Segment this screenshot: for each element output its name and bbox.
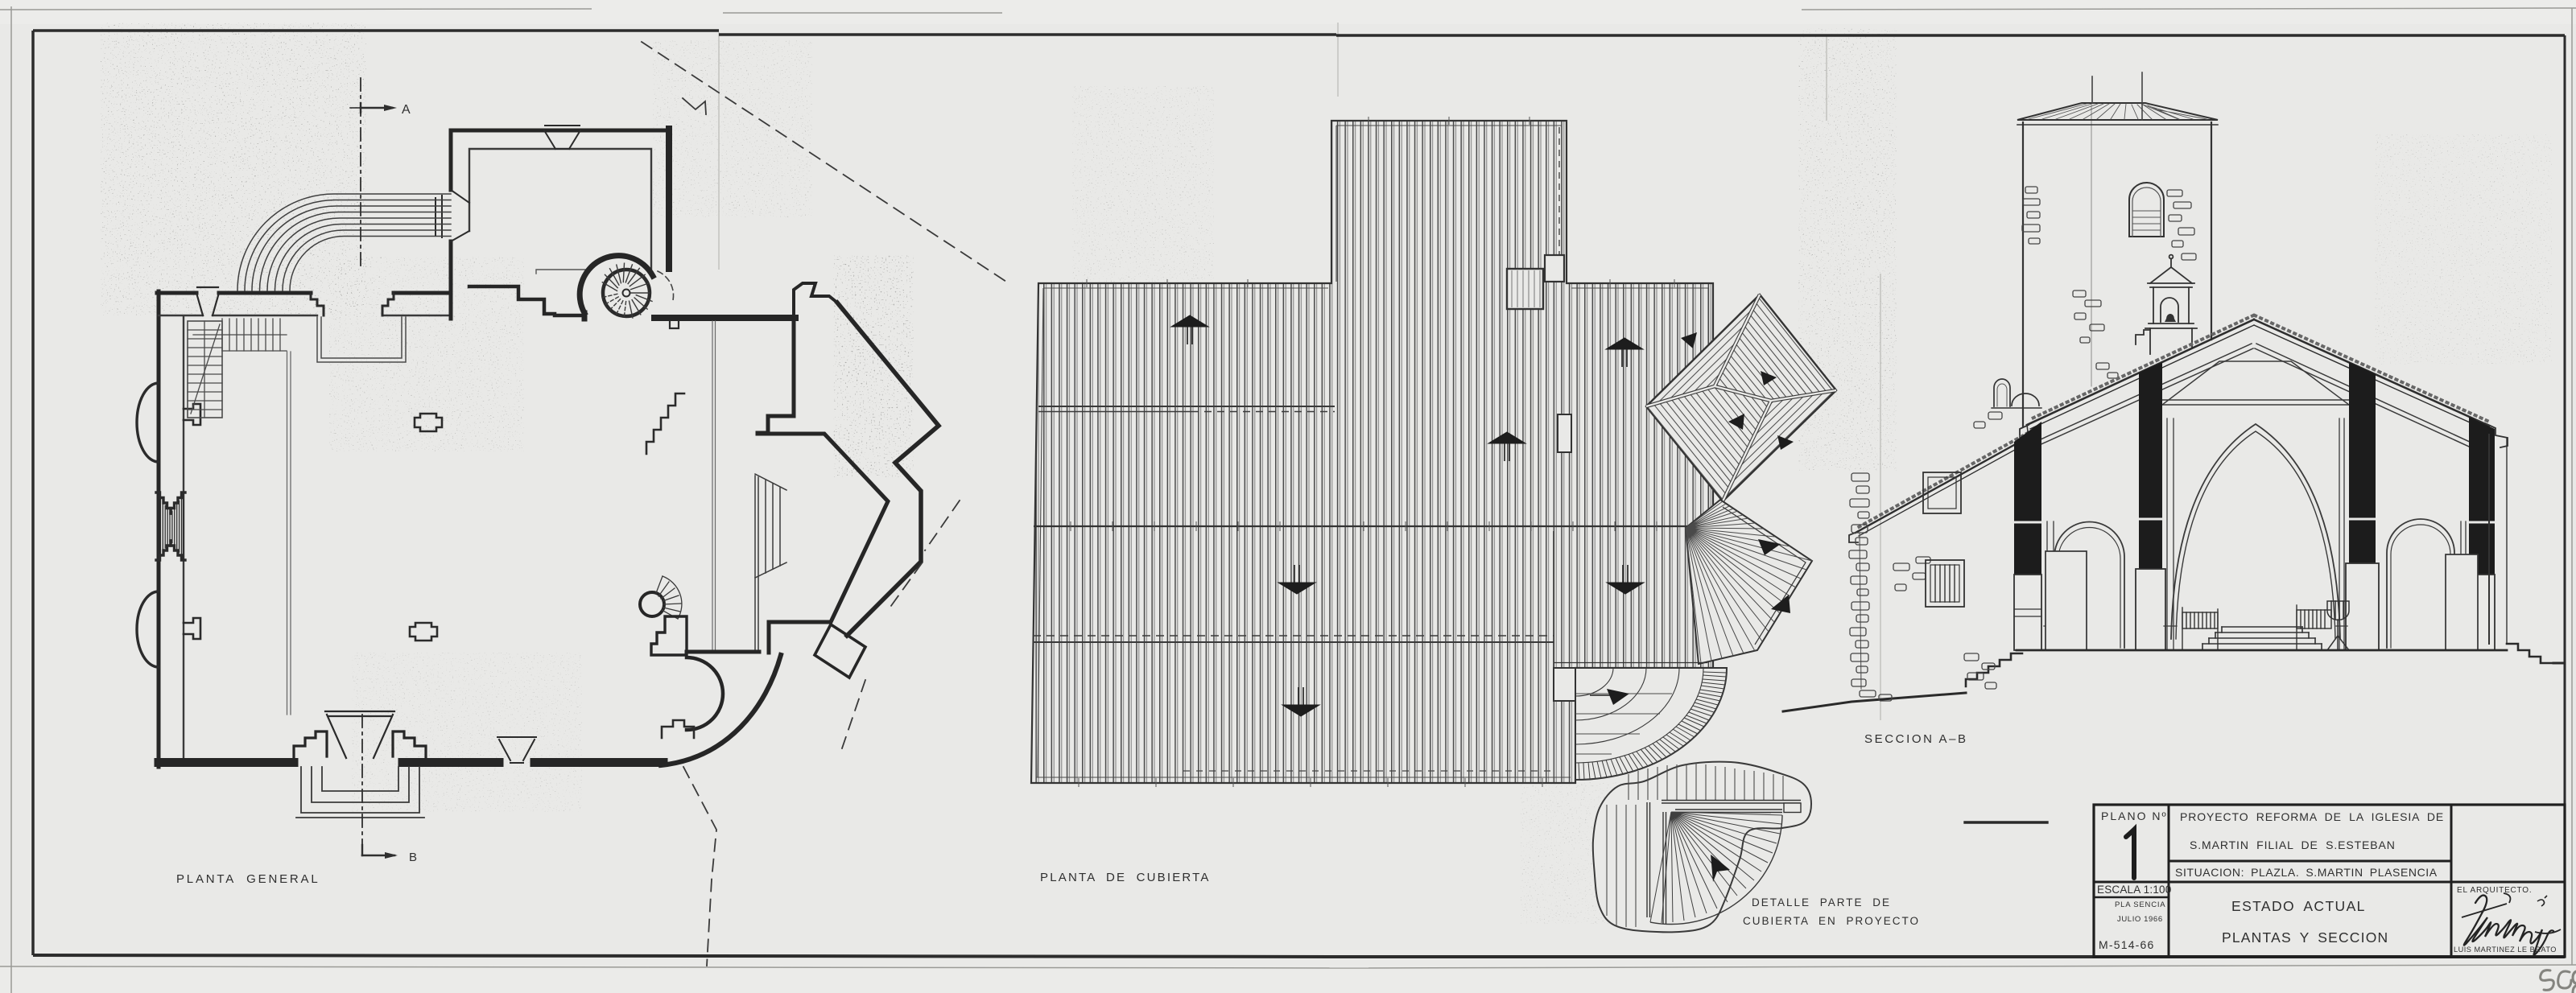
svg-text:A: A <box>402 103 411 117</box>
svg-text:PLA SENCIA: PLA SENCIA <box>2115 900 2165 909</box>
svg-text:DETALLE PARTE DE: DETALLE PARTE DE <box>1752 896 1891 909</box>
svg-text:PLANTA DE CUBIERTA: PLANTA DE CUBIERTA <box>1040 871 1211 884</box>
svg-text:ESTADO ACTUAL: ESTADO ACTUAL <box>2231 898 2366 914</box>
svg-text:CUBIERTA EN PROYECTO: CUBIERTA EN PROYECTO <box>1743 915 1920 927</box>
svg-text:LUIS MARTINEZ LE BRATO: LUIS MARTINEZ LE BRATO <box>2454 946 2557 954</box>
svg-text:SITUACION: PLAZLA. S.MARTIN: SITUACION: PLAZLA. S.MARTIN PLASENCIA <box>2175 866 2438 879</box>
svg-text:SECCION A–B: SECCION A–B <box>1864 732 1968 746</box>
svg-text:ESCALA 1:100: ESCALA 1:100 <box>2097 884 2171 896</box>
svg-text:EL ARQUITECTO.: EL ARQUITECTO. <box>2457 886 2532 895</box>
svg-text:PLANO Nº: PLANO Nº <box>2101 810 2168 822</box>
svg-text:PROYECTO REFORMA DE LA IGL: PROYECTO REFORMA DE LA IGLESIA DE <box>2180 810 2444 823</box>
svg-text:PLANTA GENERAL: PLANTA GENERAL <box>176 872 320 886</box>
svg-text:B: B <box>409 851 418 864</box>
svg-text:PLANTAS Y SECCION: PLANTAS Y SECCION <box>2222 929 2388 946</box>
svg-text:JULIO 1966: JULIO 1966 <box>2117 915 2163 924</box>
svg-text:S.MARTIN FILIAL DE S.ESTEBA: S.MARTIN FILIAL DE S.ESTEBAN <box>2190 838 2396 851</box>
svg-text:M-514-66: M-514-66 <box>2099 938 2155 951</box>
